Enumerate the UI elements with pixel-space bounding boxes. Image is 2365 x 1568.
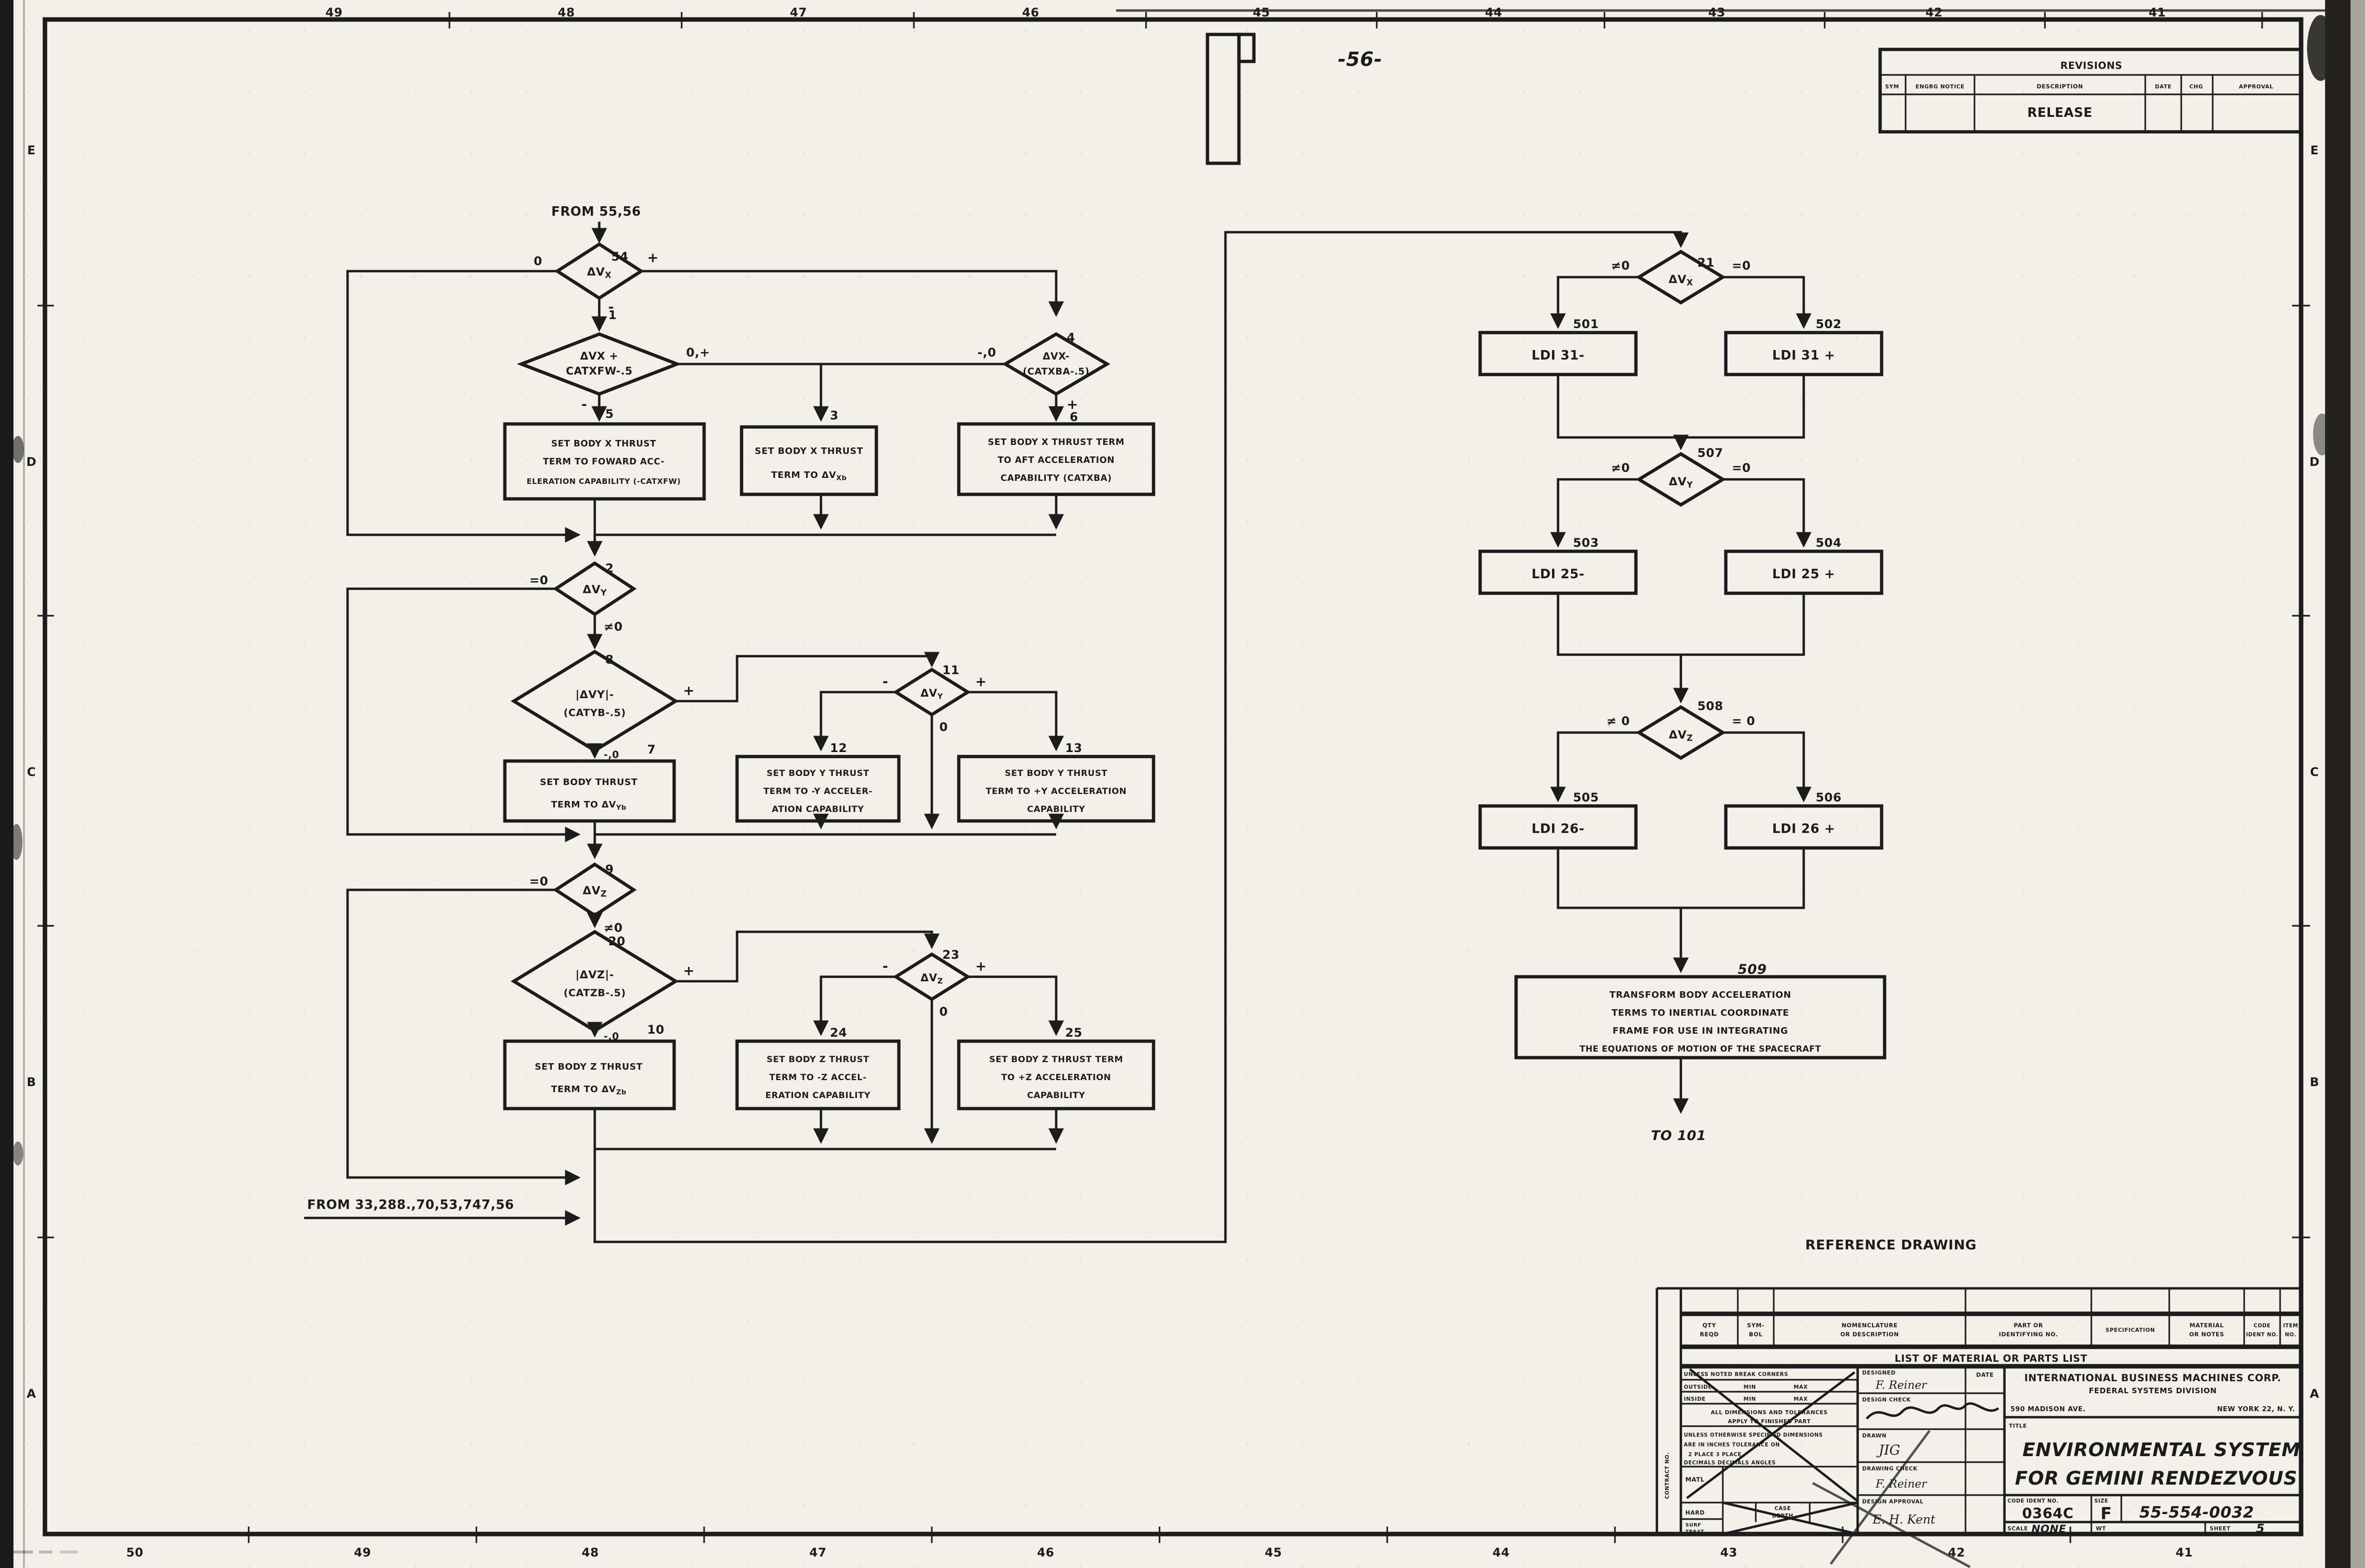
box-13-line1: SET BODY Y THRUST: [1005, 769, 1108, 779]
diamond-508: ΔVZ 508 ≠ 0 = 0: [1606, 699, 1755, 758]
diamond-11-label-base: ΔV: [920, 687, 937, 699]
flow-num-502: 502: [1816, 317, 1842, 331]
zone-right-C: C: [2310, 765, 2319, 779]
diamond-2-branch-ne0: ≠0: [604, 620, 623, 634]
flow-num-509: 509: [1738, 962, 1767, 977]
zone-bottom-41: 41: [2176, 1546, 2193, 1560]
zone-bottom-50: 50: [126, 1546, 144, 1560]
box-509-line3: FRAME FOR USE IN INTEGRATING: [1612, 1026, 1788, 1036]
drawing-canvas: 49 48 47 46 45 44 43 42 41 50 49 48 47 4…: [0, 0, 2365, 1568]
box-5-line1: SET BODY X THRUST: [551, 439, 656, 449]
revisions-col-description: DESCRIPTION: [2037, 83, 2083, 90]
diamond-54-branch-plus: +: [647, 250, 659, 266]
box-25-line2: TO +Z ACCELERATION: [1001, 1073, 1111, 1083]
designed-label: DESIGNED: [1862, 1370, 1896, 1376]
reference-drawing-note: REFERENCE DRAWING: [1805, 1237, 1976, 1253]
box-10-line2-sub: Zb: [616, 1089, 627, 1097]
zone-left-A: A: [26, 1387, 36, 1401]
zone-left-B: B: [27, 1075, 36, 1089]
flow-num-7: 7: [647, 743, 656, 757]
parts-col-item-1: ITEM: [2283, 1323, 2298, 1329]
diamond-1: ΔVX + CATXFW-.5 0,+ -: [521, 334, 710, 412]
diamond-21-label-sub: X: [1686, 278, 1693, 288]
flow-num-1: 1: [608, 308, 617, 322]
zone-top-46: 46: [1022, 5, 1040, 19]
diamond-23-branch-0: 0: [939, 1005, 948, 1019]
diamond-508-label-base: ΔV: [1669, 729, 1687, 742]
zone-left-C: C: [27, 765, 36, 779]
diamond-11-label-sub: Y: [937, 692, 943, 701]
diamond-21-branch-eq0: =0: [1732, 259, 1751, 273]
diamond-8: |ΔVY|- (CATYB-.5) 8 + -,0: [514, 652, 695, 761]
flow-num-4: 4: [1067, 331, 1075, 345]
diamond-54-branch-zero: 0: [534, 254, 542, 268]
zone-top-43: 43: [1708, 5, 1726, 19]
zone-top-42: 42: [1926, 5, 1943, 19]
box-3-line2: TERM TO ΔVXb: [771, 470, 847, 482]
diamond-8-line1: |ΔVY|-: [575, 689, 614, 701]
flow-num-23: 23: [942, 948, 960, 962]
diamond-9: ΔVZ 9 =0 ≠0: [529, 862, 634, 935]
box-12-line3: ATION CAPABILITY: [772, 804, 864, 814]
zone-bottom-48: 48: [582, 1546, 599, 1560]
parts-col-part-2: IDENTIFYING NO.: [1999, 1331, 2058, 1338]
date-label: DATE: [1976, 1371, 1993, 1378]
parts-col-qty-1: QTY: [1702, 1322, 1716, 1329]
drawing-sheet: 49 48 47 46 45 44 43 42 41 50 49 48 47 4…: [0, 0, 2365, 1568]
diamond-507: ΔVY 507 ≠0 =0: [1611, 446, 1751, 505]
box-502-label: LDI 31 +: [1772, 348, 1835, 363]
box-509-line4: THE EQUATIONS OF MOTION OF THE SPACECRAF…: [1579, 1044, 1821, 1054]
tolerance-box: UNLESS NOTED BREAK CORNERS OUTSIDE MIN M…: [1681, 1369, 1858, 1535]
title-label: TITLE: [2009, 1423, 2027, 1429]
parts-col-material-2: OR NOTES: [2189, 1331, 2224, 1338]
box-12: 12 SET BODY Y THRUST TERM TO -Y ACCELER-…: [737, 741, 899, 821]
diamond-9-branch-ne0: ≠0: [604, 921, 623, 935]
box-509: 509 TRANSFORM BODY ACCELERATION TERMS TO…: [1516, 962, 1885, 1058]
diamond-508-label: ΔVZ: [1669, 729, 1693, 743]
box-5-line3: ELERATION CAPABILITY (-CATXFW): [527, 477, 681, 486]
zone-bottom-46: 46: [1037, 1546, 1055, 1560]
diamond-23-label-base: ΔV: [920, 972, 937, 984]
diamond-20: |ΔVZ|- (CATZB-.5) 20 + -,0: [514, 932, 695, 1042]
drawn-label: DRAWN: [1862, 1433, 1887, 1439]
box-3-line2-base: TERM TO ΔV: [771, 470, 836, 480]
revisions-col-chg: CHG: [2189, 83, 2203, 90]
diamond-8-branch-plus: +: [683, 683, 695, 699]
box-6-line2: TO AFT ACCELERATION: [998, 455, 1115, 465]
diamond-9-branch-eq0: =0: [529, 874, 548, 888]
box-10-line2-base: TERM TO ΔV: [551, 1084, 616, 1095]
diamond-21-label: ΔVX: [1668, 273, 1693, 288]
sheet-label: SHEET: [2210, 1526, 2231, 1532]
alldim-line1: ALL DIMENSIONS AND TOLERANCES: [1711, 1409, 1828, 1416]
box-3-line2-sub: Xb: [836, 474, 847, 482]
box-5-line2: TERM TO FOWARD ACC-: [543, 457, 665, 467]
flow-num-54: 54: [611, 250, 629, 264]
box-13-line3: CAPABILITY: [1027, 804, 1086, 814]
diamond-20-branch-plus: +: [683, 963, 695, 979]
box-506-label: LDI 26 +: [1772, 821, 1835, 836]
diamond-23-branch-minus: -: [882, 959, 888, 974]
box-509-line1: TRANSFORM BODY ACCELERATION: [1609, 990, 1791, 1000]
box-6: 6 SET BODY X THRUST TERM TO AFT ACCELERA…: [959, 410, 1154, 494]
flow-num-501: 501: [1573, 317, 1599, 331]
flow-num-503: 503: [1573, 536, 1599, 550]
box-6-line1: SET BODY X THRUST TERM: [988, 437, 1125, 447]
diamond-11: ΔVY 11 - + 0: [882, 663, 987, 734]
flow-num-3: 3: [830, 408, 838, 422]
diamond-508-label-sub: Z: [1687, 734, 1693, 743]
drawing-number: 55-554-0032: [2139, 1504, 2254, 1522]
company-address-right: NEW YORK 22, N. Y.: [2217, 1406, 2295, 1413]
flow-num-8: 8: [605, 653, 614, 667]
zone-top-48: 48: [558, 5, 575, 19]
outside-max-label: MAX: [1794, 1384, 1808, 1390]
company-name: INTERNATIONAL BUSINESS MACHINES CORP.: [2024, 1372, 2282, 1384]
diamond-4-line1: ΔVX-: [1043, 351, 1070, 362]
zone-right-D: D: [2310, 455, 2320, 469]
outside-label: OUTSIDE: [1684, 1384, 1712, 1390]
box-10-line1: SET BODY Z THRUST: [535, 1062, 643, 1072]
zone-top-44: 44: [1485, 5, 1503, 19]
unless-line2: ARE IN INCHES TOLERANCE ON: [1684, 1443, 1780, 1448]
drawing-title-line2: FOR GEMINI RENDEZVOUS: [2015, 1467, 2298, 1489]
from-33-288-note: FROM 33,288.,70,53,747,56: [307, 1197, 514, 1212]
diamond-54-label: ΔVX: [587, 266, 611, 280]
diamond-1-line2: CATXFW-.5: [566, 365, 633, 377]
unless-line1: UNLESS OTHERWISE SPECIFIED DIMENSIONS: [1684, 1433, 1823, 1438]
box-13: 13 SET BODY Y THRUST TERM TO +Y ACCELERA…: [959, 741, 1154, 821]
zone-top-47: 47: [790, 5, 807, 19]
fold-tab-mark: [1207, 34, 1254, 163]
diamond-508-branch-eq0: = 0: [1732, 714, 1755, 728]
diamond-21-branch-ne0: ≠0: [1611, 259, 1630, 273]
box-25-line3: CAPABILITY: [1027, 1091, 1086, 1101]
flow-num-11: 11: [942, 663, 960, 677]
revisions-block: REVISIONS SYM ENGRG NOTICE DESCRIPTION D…: [1880, 49, 2301, 132]
case-label: CASE: [1775, 1506, 1791, 1512]
diamond-4-line2: (CATXBA-.5): [1023, 367, 1089, 377]
zone-right-A: A: [2310, 1387, 2319, 1401]
box-24-line2: TERM TO -Z ACCEL-: [769, 1073, 866, 1083]
diamond-1-line1: ΔVX +: [580, 350, 619, 362]
zone-right-B: B: [2310, 1075, 2320, 1089]
sheet-frame: 49 48 47 46 45 44 43 42 41 50 49 48 47 4…: [26, 5, 2325, 1560]
diamond-2: ΔVY 2 =0 ≠0: [529, 561, 634, 634]
box-7-line1: SET BODY THRUST: [540, 777, 638, 787]
outside-min-label: MIN: [1744, 1384, 1756, 1390]
diamond-2-label-sub: Y: [600, 588, 607, 598]
revisions-title: REVISIONS: [2060, 60, 2122, 71]
scale-label: SCALE: [2007, 1526, 2028, 1532]
diamond-507-label-base: ΔV: [1669, 475, 1687, 488]
diamond-2-branch-eq0: =0: [529, 573, 548, 587]
diamond-1-branch-zero-plus: 0,+: [686, 346, 710, 360]
box-501-label: LDI 31-: [1532, 348, 1584, 363]
scale-value: NONE: [2031, 1523, 2066, 1535]
diamond-11-label: ΔVY: [920, 687, 943, 701]
diamond-21-label-base: ΔV: [1668, 273, 1686, 286]
sheet-value: 5: [2256, 1522, 2265, 1536]
diamond-11-branch-minus: -: [882, 674, 888, 690]
flow-connectors-right: [1558, 277, 1804, 1112]
revisions-row-release: RELEASE: [2027, 105, 2092, 120]
zone-top-49: 49: [326, 5, 343, 19]
parts-col-code-1: CODE: [2254, 1323, 2271, 1329]
parts-col-item-2: NO.: [2285, 1332, 2297, 1338]
diamond-1-branch-minus: -: [581, 397, 587, 412]
box-7-line2-base: TERM TO ΔV: [551, 799, 616, 810]
zone-left-E: E: [27, 143, 36, 157]
flow-num-6: 6: [1070, 410, 1078, 424]
parts-col-nomenclature-1: NOMENCLATURE: [1842, 1322, 1898, 1329]
diamond-23-branch-plus: +: [975, 959, 987, 974]
revisions-col-sym: SYM: [1885, 83, 1899, 90]
box-24-line3: ERATION CAPABILITY: [766, 1091, 871, 1101]
parts-col-sym-2: BOL: [1749, 1331, 1762, 1338]
box-3: 3 SET BODY X THRUST TERM TO ΔVXb: [742, 408, 876, 494]
diamond-507-branch-eq0: =0: [1732, 461, 1751, 475]
flow-num-25: 25: [1065, 1026, 1083, 1040]
diamond-11-branch-plus: +: [975, 674, 987, 690]
alldim-line2: APPLY TO FINISHED PART: [1728, 1418, 1811, 1425]
flow-num-20: 20: [608, 934, 626, 948]
diamond-2-label: ΔVY: [583, 583, 607, 598]
parts-col-part-1: PART OR: [2014, 1322, 2043, 1329]
parts-col-sym-1: SYM-: [1747, 1322, 1765, 1329]
flow-num-10: 10: [647, 1023, 665, 1037]
box-509-line2: TERMS TO INERTIAL COORDINATE: [1611, 1008, 1789, 1018]
diamond-20-line1: |ΔVZ|-: [575, 969, 614, 981]
surf-label-1: SURF: [1685, 1523, 1701, 1528]
flow-num-504: 504: [1816, 536, 1842, 550]
designed-signature: F. Reiner: [1875, 1379, 1928, 1392]
parts-col-specification: SPECIFICATION: [2105, 1327, 2155, 1333]
parts-col-material-1: MATERIAL: [2190, 1322, 2224, 1329]
box-12-line2: TERM TO -Y ACCELER-: [764, 786, 873, 796]
box-505-label: LDI 26-: [1532, 821, 1584, 836]
box-12-line1: SET BODY Y THRUST: [767, 769, 869, 779]
flow-num-2: 2: [605, 561, 614, 575]
zone-numbers-bottom: 50 49 48 47 46 45 44 43 42 41: [126, 1546, 2193, 1560]
flow-num-508: 508: [1697, 699, 1723, 713]
revisions-col-date: DATE: [2155, 83, 2172, 90]
inside-label: INSIDE: [1684, 1396, 1706, 1402]
diamond-8-line2: (CATYB-.5): [564, 707, 626, 719]
revisions-col-approval: APPROVAL: [2239, 83, 2274, 90]
signature-column: DESIGNED F. Reiner DESIGN CHECK DRAWN JI…: [1858, 1370, 2004, 1527]
diamond-508-branch-ne0: ≠ 0: [1606, 714, 1630, 728]
zone-bottom-44: 44: [1493, 1546, 1510, 1560]
diamond-9-label: ΔVZ: [583, 884, 607, 898]
from-55-56-note: FROM 55,56: [551, 204, 641, 219]
revisions-col-notice: ENGRG NOTICE: [1916, 83, 1965, 90]
diamond-4-branch-minus-zero: -,0: [977, 346, 996, 360]
diamond-9-label-base: ΔV: [583, 884, 601, 897]
code-ident-label: CODE IDENT NO.: [2007, 1499, 2059, 1504]
diamond-23-label: ΔVZ: [920, 972, 943, 986]
zone-bottom-47: 47: [809, 1546, 827, 1560]
zone-bottom-49: 49: [354, 1546, 372, 1560]
zone-right-E: E: [2311, 143, 2319, 157]
surf-label-2: TREAT: [1685, 1530, 1704, 1535]
company-title-area: INTERNATIONAL BUSINESS MACHINES CORP. FE…: [2004, 1372, 2301, 1536]
scanned-drawing-page: 49 48 47 46 45 44 43 42 41 50 49 48 47 4…: [0, 0, 2365, 1568]
diamond-54-label-base: ΔV: [587, 266, 605, 279]
contract-no-label: CONTRACT NO.: [1665, 1452, 1670, 1499]
company-division: FEDERAL SYSTEMS DIVISION: [2089, 1386, 2217, 1395]
diamond-507-branch-ne0: ≠0: [1611, 461, 1630, 475]
box-7-line2-sub: Yb: [616, 804, 627, 812]
box-24: 24 SET BODY Z THRUST TERM TO -Z ACCEL- E…: [737, 1026, 899, 1109]
flow-num-507: 507: [1697, 446, 1723, 460]
code-ident-value: 0364C: [2022, 1506, 2073, 1522]
design-approval-label: DESIGN APPROVAL: [1862, 1499, 1924, 1505]
zone-bottom-45: 45: [1265, 1546, 1282, 1560]
box-503-label: LDI 25-: [1532, 567, 1584, 582]
box-10-line2: TERM TO ΔVZb: [551, 1084, 627, 1097]
box-7-line2: TERM TO ΔVYb: [551, 799, 627, 812]
parts-col-code-2: IDENT NO.: [2246, 1332, 2278, 1338]
company-address-left: 590 MADISON AVE.: [2010, 1406, 2086, 1413]
zone-top-45: 45: [1253, 5, 1270, 19]
box-24-line1: SET BODY Z THRUST: [767, 1055, 869, 1065]
flow-num-506: 506: [1816, 790, 1842, 804]
flow-num-9: 9: [605, 862, 614, 876]
diamond-8-branch-minus0: -,0: [604, 749, 619, 761]
diamond-2-label-base: ΔV: [583, 583, 601, 596]
design-check-signature: [1867, 1403, 1998, 1419]
drawing-check-label: DRAWING CHECK: [1862, 1466, 1918, 1472]
box-504-label: LDI 25 +: [1772, 567, 1835, 582]
diamond-54: ΔVX 54 0 + -: [534, 244, 659, 315]
diamond-23: ΔVZ 23 - + 0: [882, 948, 987, 1019]
zone-left-D: D: [26, 455, 37, 469]
diamond-9-label-sub: Z: [601, 889, 607, 899]
inside-min-label: MIN: [1744, 1396, 1756, 1402]
box-25: 25 SET BODY Z THRUST TERM TO +Z ACCELERA…: [959, 1026, 1154, 1109]
zone-ticks-sides: [37, 306, 2310, 1237]
flow-connectors-left: [304, 222, 1681, 1242]
box-13-line2: TERM TO +Y ACCELERATION: [986, 786, 1127, 796]
box-25-line1: SET BODY Z THRUST TERM: [989, 1055, 1123, 1065]
size-value: F: [2100, 1504, 2112, 1523]
diamond-54-label-sub: X: [605, 271, 611, 280]
inside-max-label: MAX: [1794, 1396, 1808, 1402]
unless-line3: 2 PLACE 3 PLACE: [1688, 1452, 1741, 1458]
flow-num-21: 21: [1697, 256, 1715, 270]
box-5: 5 SET BODY X THRUST TERM TO FOWARD ACC- …: [505, 407, 704, 499]
wt-label: WT: [2096, 1526, 2106, 1532]
diamond-20-line2: (CATZB-.5): [564, 987, 626, 999]
parts-col-nomenclature-2: OR DESCRIPTION: [1840, 1331, 1899, 1338]
parts-col-qty-2: REQD: [1700, 1331, 1719, 1338]
drawn-signature: JIG: [1876, 1443, 1900, 1458]
flow-num-13: 13: [1065, 741, 1083, 755]
flow-num-24: 24: [830, 1026, 847, 1040]
diamond-507-label-sub: Y: [1686, 480, 1693, 490]
flow-num-505: 505: [1573, 790, 1599, 804]
box-6-line3: CAPABILITY (CATXBA): [1001, 473, 1112, 483]
drawing-check-signature: F. Reiner: [1875, 1478, 1928, 1491]
diamond-4: ΔVX- (CATXBA-.5) 4 -,0 +: [977, 331, 1107, 412]
box-3-line1: SET BODY X THRUST: [755, 446, 863, 456]
diamond-23-label-sub: Z: [937, 977, 943, 986]
flow-num-5: 5: [605, 407, 614, 421]
page-number-note: -56-: [1338, 48, 1382, 71]
zone-top-41: 41: [2149, 5, 2166, 19]
diamond-11-branch-0: 0: [939, 720, 948, 734]
parts-list-title: LIST OF MATERIAL OR PARTS LIST: [1895, 1353, 2087, 1364]
to-101-note: TO 101: [1651, 1128, 1706, 1144]
diamond-507-label: ΔVY: [1669, 475, 1693, 490]
zone-bottom-43: 43: [1720, 1546, 1738, 1560]
box-7: 7 SET BODY THRUST TERM TO ΔVYb: [505, 743, 674, 821]
drawing-title-line1: ENVIRONMENTAL SYSTEM: [2022, 1439, 2301, 1461]
design-check-label: DESIGN CHECK: [1862, 1397, 1911, 1403]
box-10: 10 SET BODY Z THRUST TERM TO ΔVZb: [505, 1023, 674, 1109]
matl-label: MATL: [1685, 1476, 1705, 1483]
hard-label: HARD: [1685, 1509, 1705, 1516]
flow-num-12: 12: [830, 741, 847, 755]
title-block: UNLESS NOTED BREAK CORNERS OUTSIDE MIN M…: [1681, 1366, 2301, 1567]
